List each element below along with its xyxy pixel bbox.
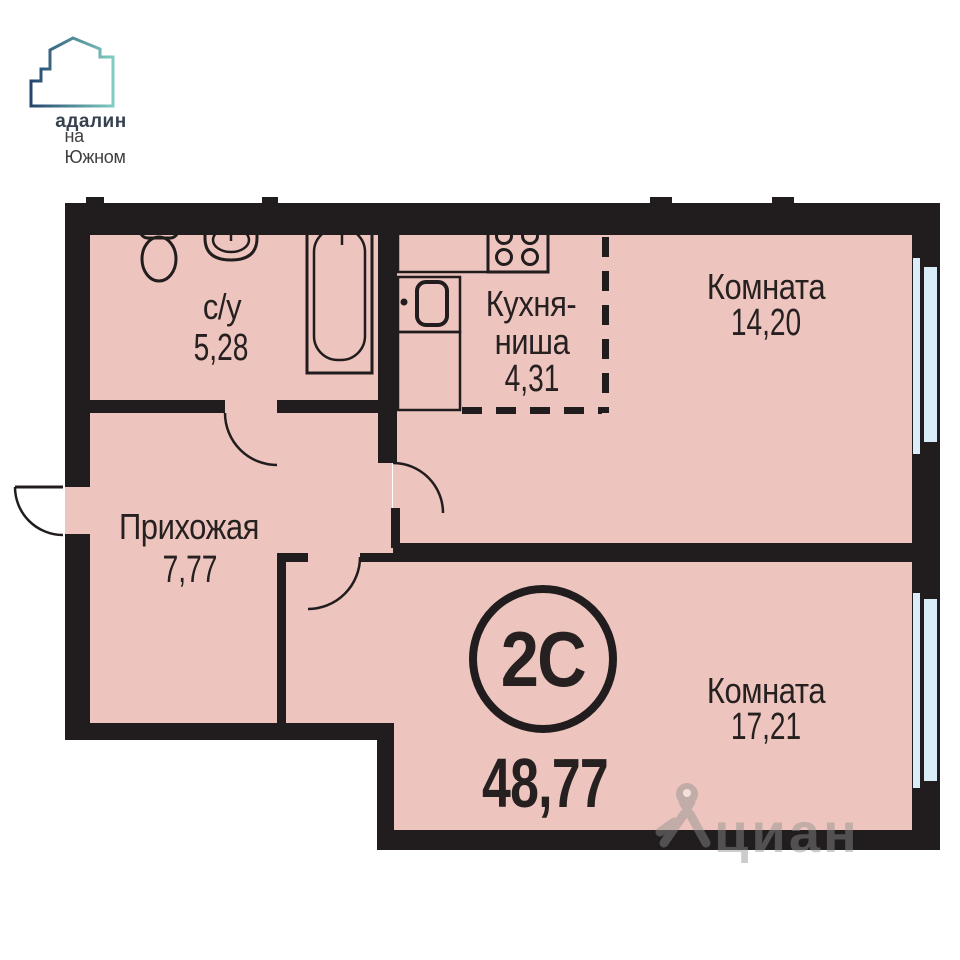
watermark-text: циан xyxy=(714,805,860,861)
floorplan-canvas: адалин на Южном xyxy=(0,0,960,960)
